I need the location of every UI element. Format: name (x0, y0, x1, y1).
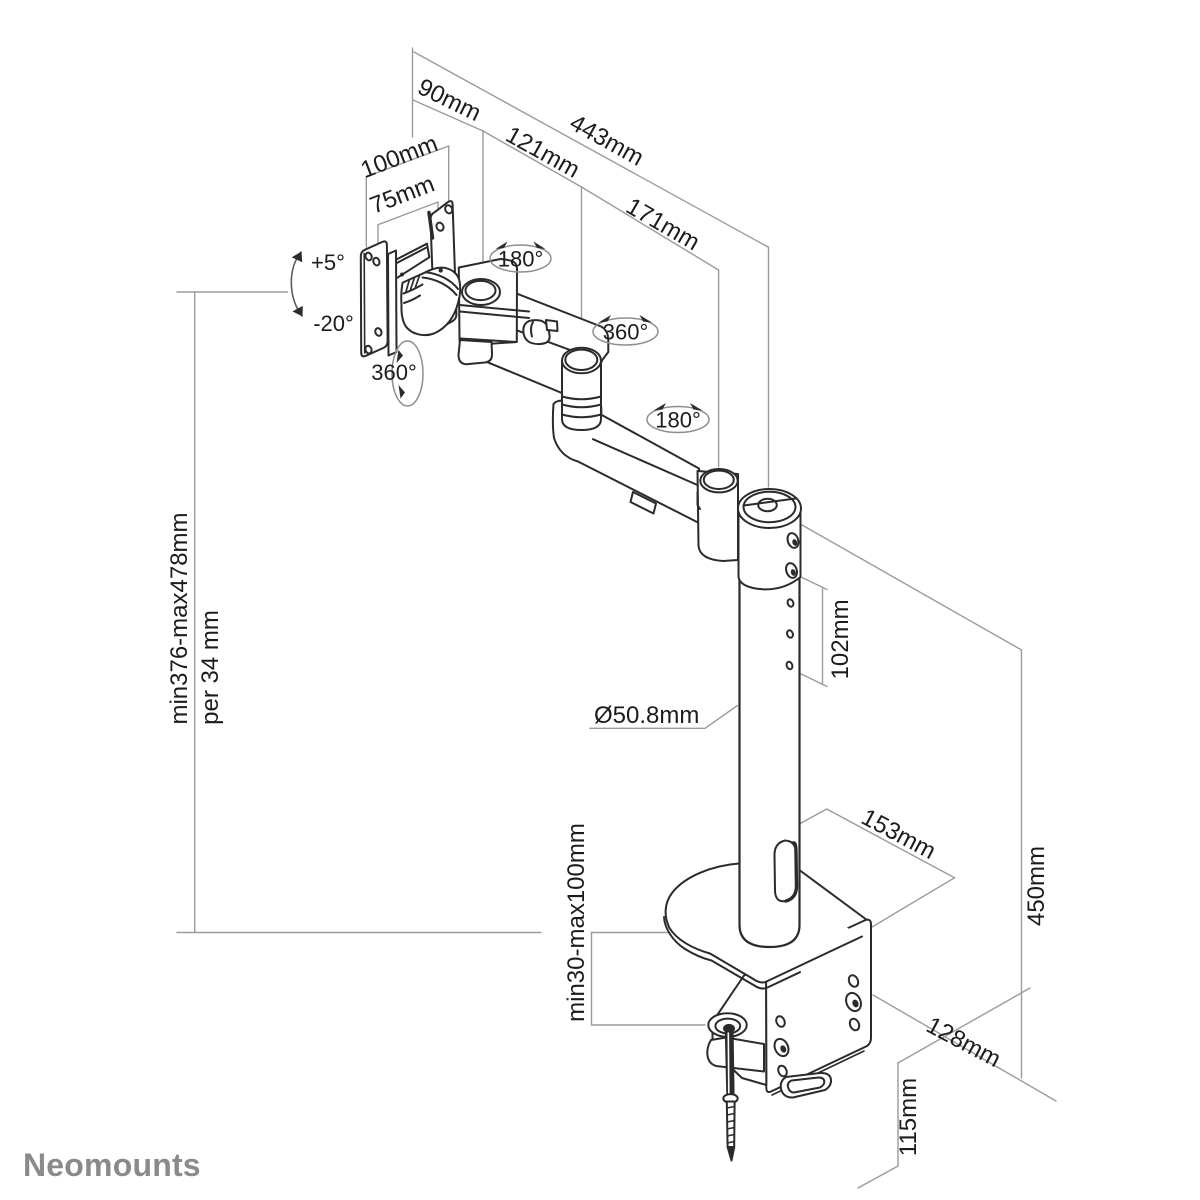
svg-text:450mm: 450mm (1023, 846, 1050, 926)
svg-text:360°: 360° (371, 360, 417, 385)
svg-text:115mm: 115mm (895, 1078, 922, 1156)
svg-text:min30-max100mm: min30-max100mm (563, 823, 590, 1022)
svg-text:min376-max478mm: min376-max478mm (166, 512, 193, 724)
svg-text:Ø50.8mm: Ø50.8mm (594, 702, 699, 729)
svg-text:360°: 360° (603, 320, 649, 345)
svg-text:per 34 mm: per 34 mm (197, 610, 224, 725)
svg-text:102mm: 102mm (827, 599, 854, 679)
svg-text:180°: 180° (655, 408, 701, 433)
svg-text:-20°: -20° (313, 311, 354, 336)
svg-text:180°: 180° (498, 247, 544, 272)
svg-text:+5°: +5° (311, 250, 345, 275)
svg-text:Neomounts: Neomounts (23, 1147, 201, 1183)
